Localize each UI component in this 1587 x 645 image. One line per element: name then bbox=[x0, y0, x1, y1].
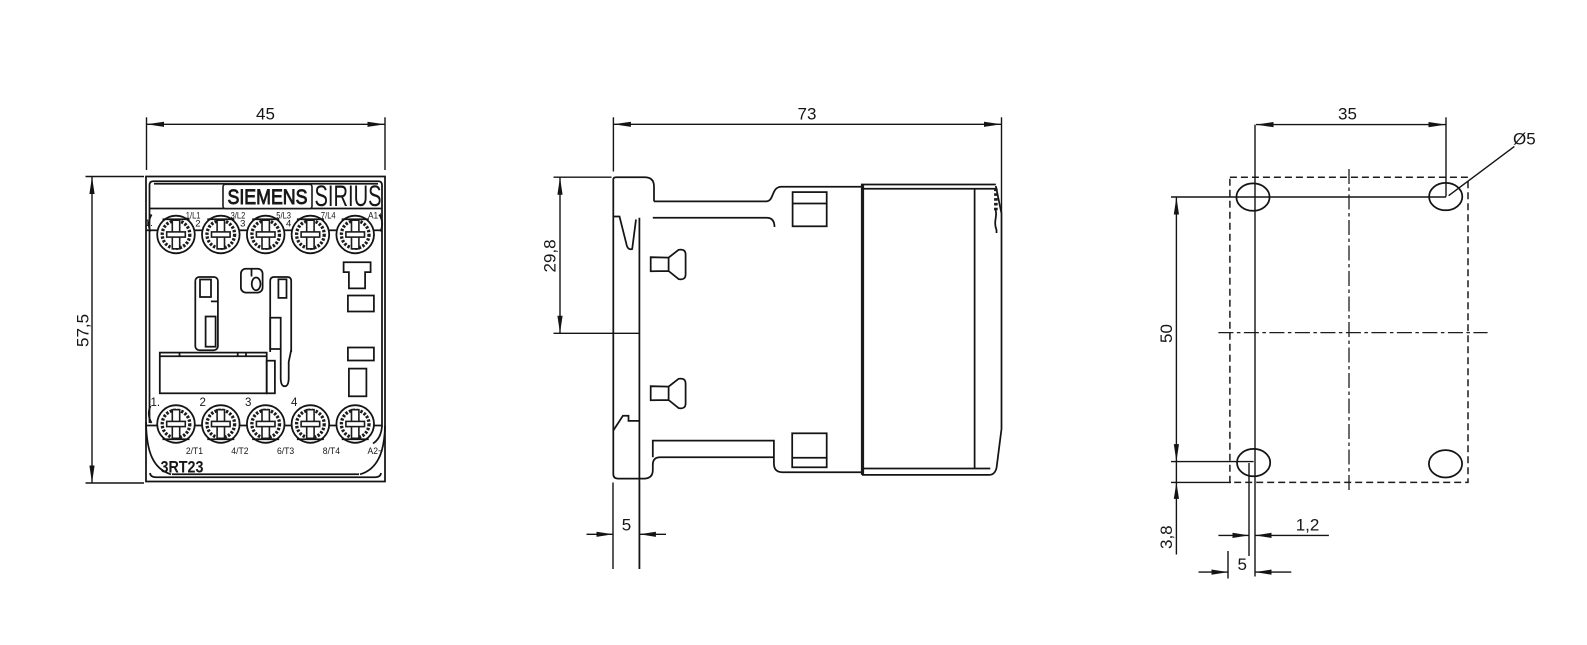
svg-text:3: 3 bbox=[245, 397, 251, 409]
svg-text:A1+: A1+ bbox=[368, 210, 383, 221]
svg-text:6/T3: 6/T3 bbox=[277, 446, 294, 457]
svg-text:29,8: 29,8 bbox=[541, 239, 560, 272]
svg-text:4: 4 bbox=[286, 218, 291, 229]
svg-text:4: 4 bbox=[291, 397, 298, 409]
svg-text:A2−: A2− bbox=[368, 446, 384, 457]
svg-text:3: 3 bbox=[240, 218, 245, 229]
svg-text:35: 35 bbox=[1338, 105, 1357, 124]
svg-text:2: 2 bbox=[195, 218, 200, 229]
svg-text:3RT23: 3RT23 bbox=[161, 459, 204, 477]
svg-text:Ø5: Ø5 bbox=[1513, 130, 1536, 149]
svg-text:50: 50 bbox=[1157, 324, 1176, 343]
svg-text:5: 5 bbox=[1238, 555, 1247, 574]
svg-text:7/L4: 7/L4 bbox=[321, 210, 336, 221]
svg-text:SIEMENS: SIEMENS bbox=[228, 186, 308, 209]
svg-text:SIRIUS: SIRIUS bbox=[315, 180, 382, 213]
svg-text:73: 73 bbox=[798, 105, 817, 124]
svg-text:57,5: 57,5 bbox=[74, 314, 93, 347]
svg-text:8/T4: 8/T4 bbox=[323, 446, 340, 457]
svg-text:45: 45 bbox=[256, 105, 275, 124]
svg-text:3,8: 3,8 bbox=[1157, 525, 1176, 549]
svg-text:1,2: 1,2 bbox=[1296, 516, 1320, 535]
svg-text:1.: 1. bbox=[145, 218, 153, 229]
svg-text:4/T2: 4/T2 bbox=[231, 446, 248, 457]
svg-text:1.: 1. bbox=[151, 397, 161, 409]
svg-text:2/T1: 2/T1 bbox=[186, 446, 203, 457]
svg-text:5: 5 bbox=[622, 516, 631, 535]
svg-text:2: 2 bbox=[200, 397, 206, 409]
